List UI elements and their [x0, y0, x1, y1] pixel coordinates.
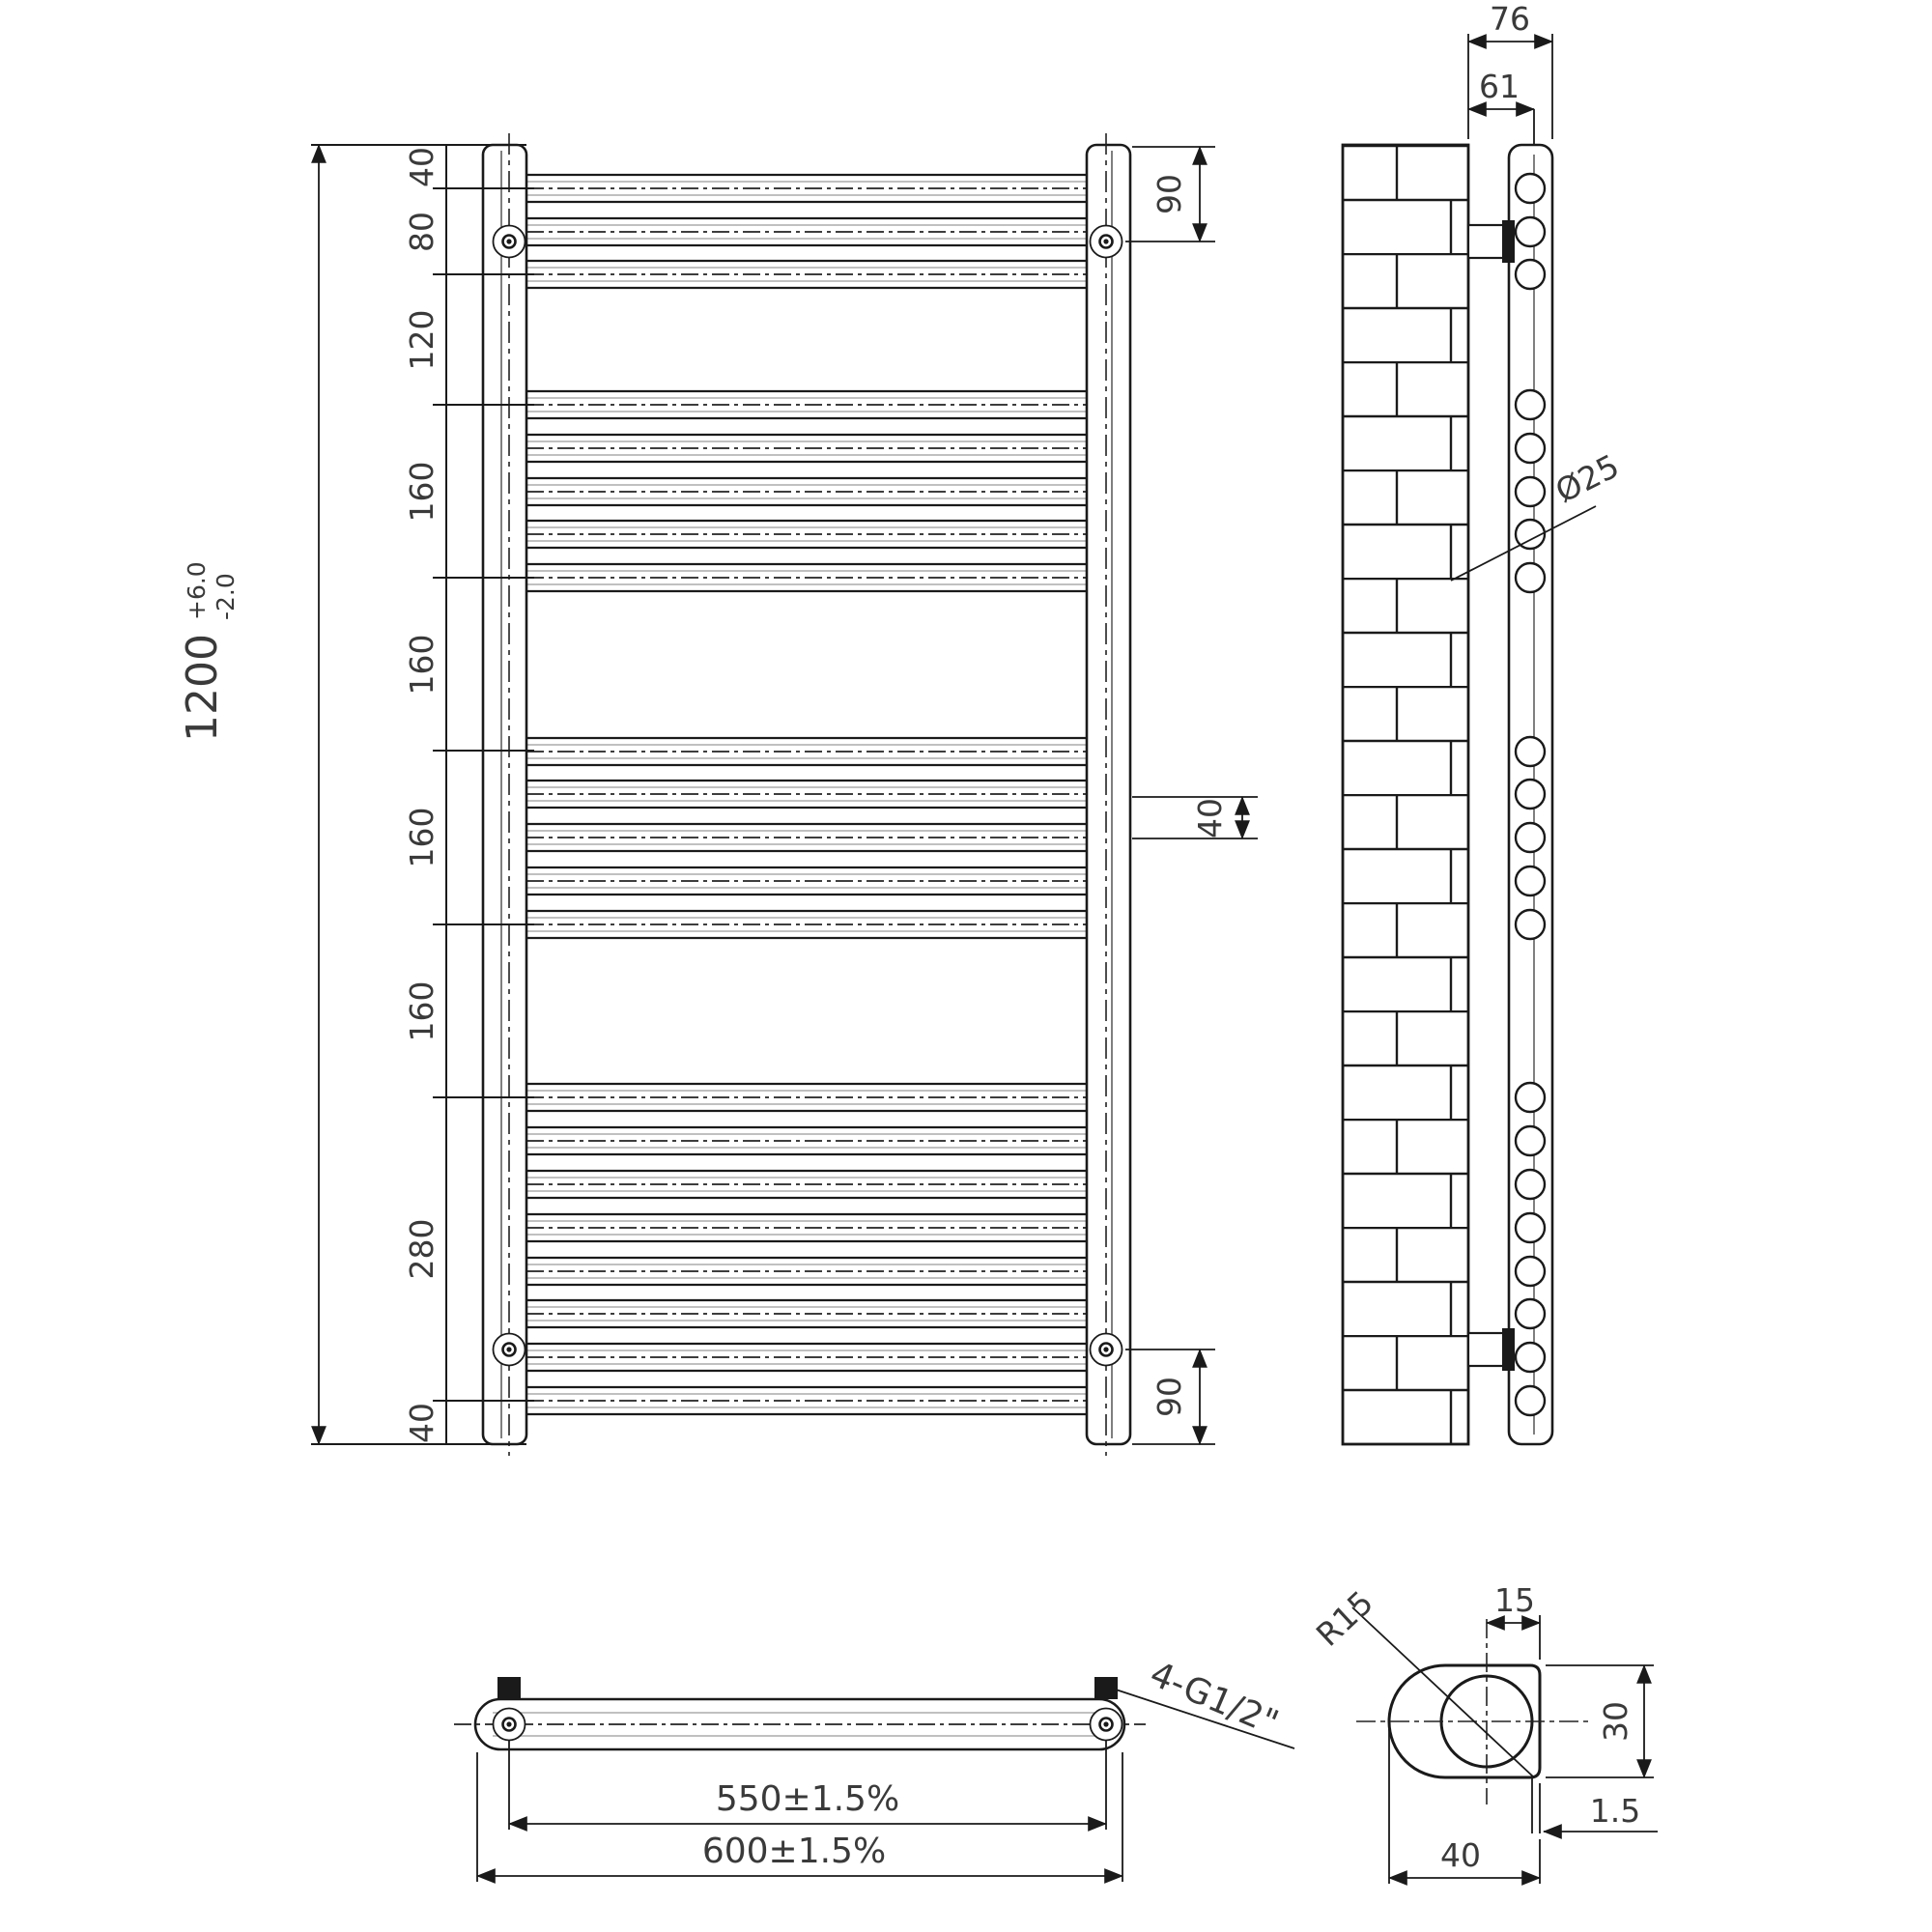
tube-rung [526, 1300, 1087, 1327]
bracket-front-top-right [1091, 226, 1122, 258]
tube-end-circle [1516, 1257, 1545, 1286]
dim-label: 280 [403, 1219, 440, 1280]
dim-label: 160 [403, 635, 440, 696]
tube-rung [526, 1171, 1087, 1198]
bracket-side-bottom [1468, 1328, 1515, 1371]
dim-label: 80 [403, 212, 440, 252]
tube-rung [526, 867, 1087, 895]
tube-diameter-label: Ø25 [1549, 447, 1625, 511]
dim-76-label: 76 [1490, 0, 1530, 38]
tolerance-plus-label: +6.0 [183, 561, 211, 620]
dim-wall-label: 1.5 [1590, 1792, 1640, 1830]
towel-rail-drawing: 40 80 120 160 160 160 160 280 40 1200 +6… [0, 0, 1932, 1932]
dim-overall-height: 1200 +6.0 -2.0 [178, 145, 319, 1444]
tube-rungs [526, 175, 1087, 1414]
dim-label: 160 [403, 462, 440, 523]
tube-end-circle [1516, 1083, 1545, 1112]
tube-rung [526, 391, 1087, 418]
dim-label: 40 [403, 147, 440, 187]
tube-end-circle [1516, 910, 1545, 939]
dim-61-label: 61 [1479, 68, 1520, 105]
dim-40-right: 40 [1132, 797, 1258, 838]
dim-90-bottom: 90 [1125, 1350, 1215, 1444]
technical-drawing-page: 40 80 120 160 160 160 160 280 40 1200 +6… [0, 0, 1932, 1932]
tube-rung [526, 564, 1087, 591]
tube-end-circle [1516, 1343, 1545, 1372]
bracket-front-top-left [494, 226, 526, 258]
tube-rung [526, 1127, 1087, 1154]
tube-end-circle [1516, 1170, 1545, 1199]
dim-90-top-label: 90 [1151, 174, 1188, 214]
dim-40-mid-label: 40 [1191, 798, 1229, 838]
side-view: 76 61 Ø25 [1343, 0, 1625, 1444]
bracket-front-bottom-right [1091, 1334, 1122, 1366]
overall-height-label: 1200 [178, 634, 227, 742]
tube-end-circle [1516, 823, 1545, 852]
tube-rung [526, 218, 1087, 245]
tube-end-circle [1516, 1386, 1545, 1415]
tube-rung [526, 1344, 1087, 1371]
tube-end-circle [1516, 434, 1545, 463]
front-view: 40 80 120 160 160 160 160 280 40 1200 +6… [178, 133, 1258, 1456]
bracket-front-bottom-left [494, 1334, 526, 1366]
bracket-side-top [1468, 220, 1515, 263]
thread-callout: 4-G1/2" [1113, 1655, 1294, 1748]
dim-15-label: 15 [1494, 1581, 1535, 1619]
tube-end-circle [1516, 260, 1545, 289]
tube-end-circle [1516, 563, 1545, 592]
dim-label: 160 [403, 981, 440, 1042]
tube-rung [526, 911, 1087, 938]
tube-rung [526, 435, 1087, 462]
tube-rung [526, 175, 1087, 202]
tube-end-circle [1516, 477, 1545, 506]
dimension-chain-labels: 40 80 120 160 160 160 160 280 40 [403, 147, 440, 1443]
tolerance-minus-label: -2.0 [212, 573, 240, 620]
dim-15: 15 [1487, 1581, 1540, 1660]
dim-550-label: 550±1.5% [716, 1779, 899, 1819]
tube-end-circle [1516, 780, 1545, 809]
tube-end-circle [1516, 737, 1545, 766]
right-rail [1087, 133, 1130, 1456]
radius-label: R15 [1309, 1583, 1380, 1654]
tube-rung [526, 824, 1087, 851]
dim-label: 40 [403, 1403, 440, 1443]
tube-rung [526, 1214, 1087, 1241]
tube-end-circle [1516, 1299, 1545, 1328]
tube-rung [526, 1387, 1087, 1414]
dim-90-top: 90 [1125, 147, 1215, 241]
tube-rung [526, 521, 1087, 548]
tube-rung [526, 781, 1087, 808]
dim-90-bottom-label: 90 [1151, 1377, 1188, 1417]
dim-label: 120 [403, 310, 440, 371]
dim-label: 160 [403, 808, 440, 868]
tube-end-circle [1516, 1213, 1545, 1242]
brick-wall [1343, 145, 1468, 1444]
dim-wall: 1.5 [1532, 1777, 1658, 1833]
tube-rung [526, 478, 1087, 505]
thread-label: 4-G1/2" [1144, 1655, 1284, 1744]
dim-61: 61 [1468, 68, 1534, 145]
dim-550: 550±1.5% [509, 1741, 1106, 1830]
tube-end-circle [1516, 867, 1545, 895]
tube-end-circle [1516, 390, 1545, 419]
tube-end-circle [1516, 174, 1545, 203]
dim-40-label: 40 [1440, 1836, 1481, 1874]
tube-end-circle [1516, 217, 1545, 246]
tube-rung [526, 738, 1087, 765]
plan-view: 550±1.5% 600±1.5% 4-G1/2" [454, 1655, 1294, 1882]
section-detail: R15 15 30 1.5 40 [1309, 1581, 1658, 1884]
tube-rung [526, 261, 1087, 288]
dim-30-label: 30 [1597, 1701, 1634, 1742]
dim-600-label: 600±1.5% [702, 1832, 886, 1871]
tube-rung [526, 1258, 1087, 1285]
tube-end-circle [1516, 1126, 1545, 1155]
tube-rung [526, 1084, 1087, 1111]
left-rail [483, 133, 526, 1456]
